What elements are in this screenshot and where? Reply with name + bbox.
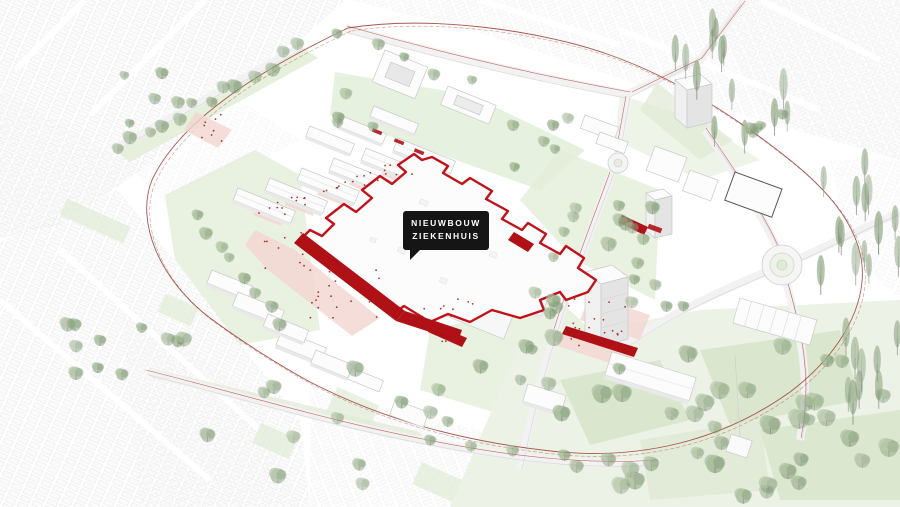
person-dot [572, 323, 574, 325]
person-dot [329, 271, 331, 273]
person-dot [603, 339, 605, 341]
person-dot [297, 241, 299, 243]
person-dot [603, 319, 605, 321]
person-dot [323, 191, 325, 193]
person-dot [422, 316, 424, 318]
person-dot [435, 333, 437, 335]
label-line-2: ZIEKENHUIS [407, 230, 485, 243]
person-dot [316, 247, 318, 249]
person-dot [338, 185, 340, 187]
person-dot [281, 207, 283, 209]
label-line-1: NIEUWBOUW [407, 217, 485, 230]
person-dot [612, 330, 614, 332]
person-dot [472, 303, 474, 305]
person-dot [317, 291, 319, 293]
person-dot [215, 118, 217, 120]
person-dot [299, 262, 301, 264]
person-dot [628, 346, 630, 348]
person-dot [266, 241, 268, 243]
person-dot [567, 331, 569, 333]
person-dot [303, 265, 305, 267]
person-dot [326, 190, 328, 192]
person-dot [588, 327, 590, 329]
person-dot [600, 343, 602, 345]
person-dot [457, 298, 459, 300]
person-dot [440, 334, 442, 336]
roundabout-small [608, 153, 628, 173]
person-dot [588, 301, 590, 303]
person-dot [291, 197, 293, 199]
roundabout-large [762, 245, 802, 285]
person-dot [303, 248, 305, 250]
person-dot [277, 202, 279, 204]
person-dot [302, 235, 304, 237]
person-dot [303, 198, 305, 200]
tree-icon [817, 255, 825, 295]
person-dot [568, 305, 570, 307]
person-dot [350, 300, 352, 302]
person-dot [278, 247, 280, 249]
person-dot [369, 172, 371, 174]
person-dot [449, 336, 451, 338]
person-dot [269, 207, 271, 209]
person-dot [304, 204, 306, 206]
person-dot [608, 301, 610, 303]
person-dot [411, 173, 413, 175]
person-dot [302, 253, 304, 255]
person-dot [336, 187, 338, 189]
person-dot [450, 315, 452, 317]
person-dot [385, 173, 387, 175]
person-dot [604, 332, 606, 334]
masterplan-illustration: NIEUWBOUW ZIEKENHUIS [0, 0, 900, 507]
site-plan-svg [0, 0, 900, 507]
person-dot [264, 241, 266, 243]
person-dot [335, 280, 337, 282]
person-dot [594, 338, 596, 340]
person-dot [378, 278, 380, 280]
person-dot [621, 331, 623, 333]
tree-icon [771, 98, 779, 136]
person-dot [343, 272, 345, 274]
tree-icon [427, 68, 440, 80]
person-dot [441, 341, 443, 343]
person-dot [221, 140, 223, 142]
person-dot [201, 137, 203, 139]
tree-icon [547, 119, 560, 130]
person-dot [300, 241, 302, 243]
person-dot [467, 301, 469, 303]
person-dot [336, 306, 338, 308]
person-dot [573, 329, 575, 331]
person-dot [452, 308, 454, 310]
tree-icon [851, 242, 860, 285]
person-dot [284, 237, 286, 239]
person-dot [352, 181, 354, 183]
person-dot [594, 318, 596, 320]
person-dot [375, 269, 377, 271]
person-dot [389, 164, 391, 166]
person-dot [634, 348, 636, 350]
person-dot [310, 317, 312, 319]
person-dot [264, 267, 266, 269]
person-dot [295, 200, 297, 202]
person-dot [369, 301, 371, 303]
person-dot [220, 114, 222, 116]
person-dot [330, 295, 332, 297]
person-dot [624, 306, 626, 308]
person-dot [573, 336, 575, 338]
person-dot [445, 340, 447, 342]
person-dot [317, 307, 319, 309]
person-dot [377, 180, 379, 182]
tree-icon [562, 113, 574, 124]
person-dot [344, 181, 346, 183]
person-dot [309, 269, 311, 271]
person-dot [213, 130, 215, 132]
person-dot [300, 232, 302, 234]
person-dot [296, 197, 298, 199]
person-dot [311, 302, 313, 304]
person-dot [570, 338, 572, 340]
person-dot [276, 207, 278, 209]
person-dot [317, 296, 319, 298]
person-dot [460, 340, 462, 342]
person-dot [332, 317, 334, 319]
person-dot [328, 285, 330, 287]
person-dot [440, 308, 442, 310]
person-dot [363, 175, 365, 177]
tree-icon [821, 166, 827, 197]
person-dot [364, 184, 366, 186]
person-dot [579, 328, 581, 330]
person-dot [578, 345, 580, 347]
person-dot [396, 174, 398, 176]
person-dot [617, 333, 619, 335]
person-dot [438, 328, 440, 330]
person-dot [423, 308, 425, 310]
tree-icon [866, 254, 872, 284]
tree-icon [660, 301, 672, 312]
person-dot [574, 298, 576, 300]
tree-icon [467, 75, 477, 84]
person-dot [384, 170, 386, 172]
person-dot [315, 299, 317, 301]
person-dot [376, 316, 378, 318]
person-dot [574, 327, 576, 329]
nieuwbouw-ziekenhuis-label: NIEUWBOUW ZIEKENHUIS [403, 211, 489, 250]
person-dot [443, 305, 445, 307]
person-dot [211, 134, 213, 136]
person-dot [204, 121, 206, 123]
person-dot [258, 212, 260, 214]
person-dot [304, 239, 306, 241]
person-dot [384, 165, 386, 167]
tree-icon [332, 29, 343, 39]
person-dot [284, 213, 286, 215]
person-dot [442, 334, 444, 336]
person-dot [356, 176, 358, 178]
person-dot [203, 125, 205, 127]
